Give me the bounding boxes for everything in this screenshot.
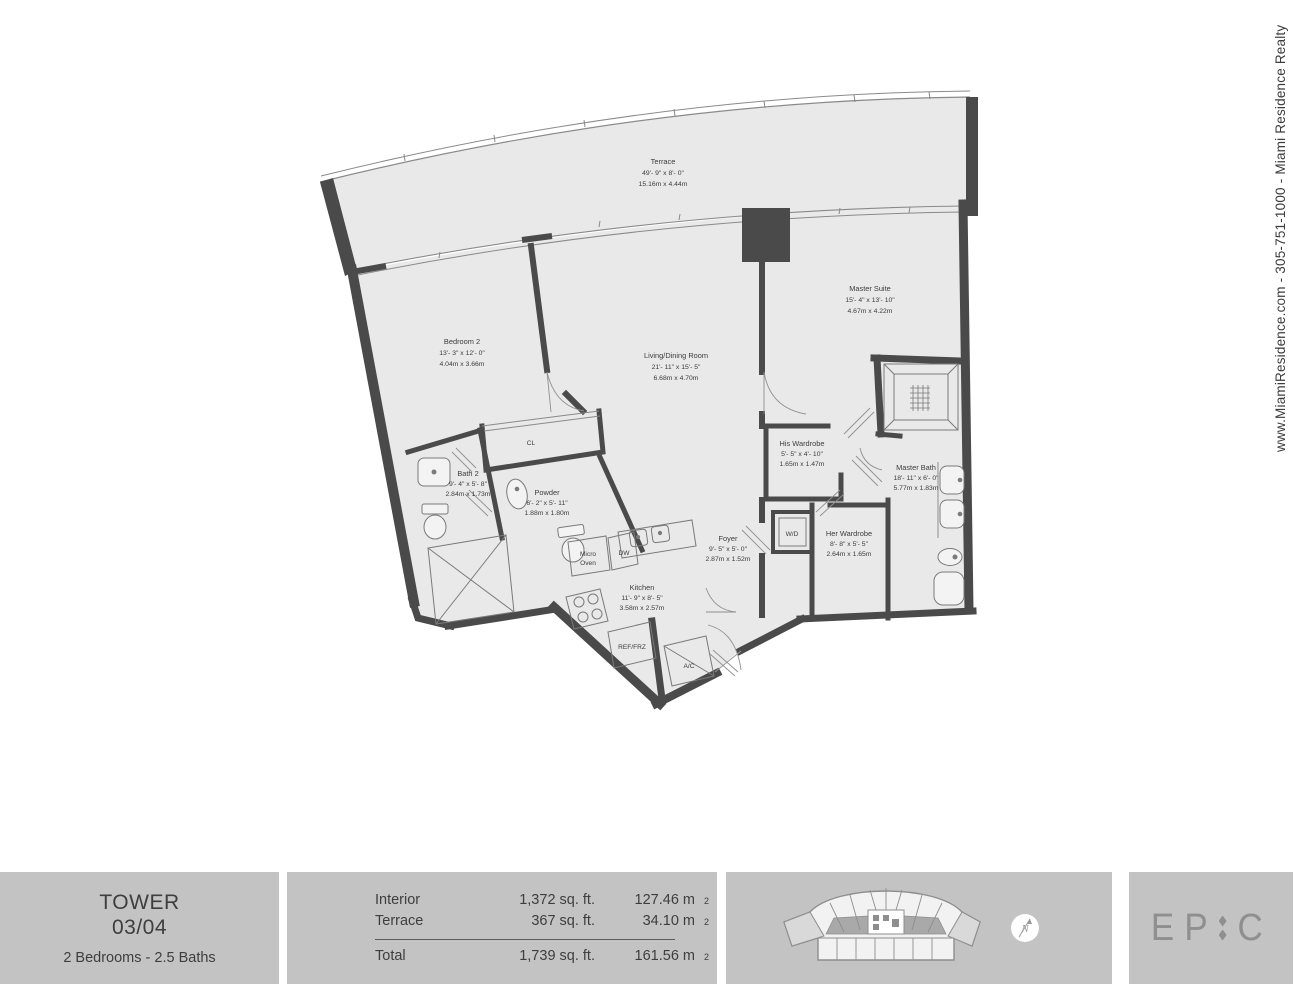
room-dim-m: 1.65m x 1.47m	[780, 461, 825, 468]
epic-logo-right: C	[1237, 907, 1272, 950]
room-dim-ft: 9'- 4" x 5'- 8"	[449, 481, 488, 488]
structural-column	[742, 208, 790, 262]
room-dim-m: 6.68m x 4.70m	[654, 375, 699, 382]
area-metric: 34.10 m	[595, 911, 695, 932]
terrace-right-wall	[966, 97, 978, 216]
room-label: Master Suite	[849, 284, 891, 293]
room-label: Terrace	[651, 157, 676, 166]
room-dim-ft: 11'- 9" x 8'- 5"	[621, 595, 663, 602]
room-dim-ft: 21'- 11" x 15'- 5"	[652, 364, 701, 371]
contact-sidebar-text: www.MiamiResidence.com - 305-751-1000 - …	[1273, 6, 1293, 452]
area-metric-sup: 2	[704, 947, 709, 968]
area-imperial: 1,739 sq. ft.	[465, 946, 595, 967]
master-toilet	[938, 549, 962, 566]
area-label: Terrace	[375, 911, 465, 932]
unit-config: 2 Bedrooms - 2.5 Baths	[63, 950, 215, 966]
room-dim-m: 4.67m x 4.22m	[848, 308, 893, 315]
room-label: Bedroom 2	[444, 337, 480, 346]
room-dim-ft: 13'- 3" x 12'- 0"	[439, 350, 485, 357]
room-dim-m: 15.16m x 4.44m	[639, 181, 688, 188]
master-bidet	[934, 572, 964, 605]
ac-label: A/C	[684, 663, 695, 670]
area-label: Total	[375, 946, 465, 967]
area-row-terrace: Terrace 367 sq. ft. 34.10 m 2	[375, 911, 717, 932]
room-label: Bath 2	[457, 469, 478, 478]
area-metric: 127.46 m	[595, 890, 695, 911]
closet-label: CL	[527, 440, 536, 447]
unit-number: 03/04	[112, 915, 167, 940]
brand-panel: EP C	[1129, 872, 1293, 984]
footer-bar: TOWER 03/04 2 Bedrooms - 2.5 Baths Inter…	[0, 872, 1295, 984]
building-key-plan: N	[726, 872, 1112, 984]
bath2-toilet-tank	[422, 504, 448, 514]
area-imperial: 1,372 sq. ft.	[465, 890, 595, 911]
room-dim-m: 4.04m x 3.66m	[440, 361, 485, 368]
room-label: Powder	[534, 488, 560, 497]
room-dim-m: 2.64m x 1.65m	[827, 551, 872, 558]
compass-north-label: N	[1020, 923, 1029, 935]
bath2-toilet	[424, 515, 446, 539]
floor-plan-sheet: Terrace 49'- 9" x 8'- 0" 15.16m x 4.44m …	[0, 0, 1295, 986]
area-imperial: 367 sq. ft.	[465, 911, 595, 932]
epic-logo-diamonds-icon	[1219, 916, 1227, 941]
microwave-label-2: Oven	[580, 560, 596, 567]
compass: N	[1011, 914, 1039, 942]
area-metric-sup: 2	[704, 891, 709, 912]
keyplan-panel: N	[726, 872, 1112, 984]
area-label: Interior	[375, 890, 465, 911]
dishwasher-label: DW	[619, 550, 631, 557]
area-table-panel: Interior 1,372 sq. ft. 127.46 m 2 Terrac…	[287, 872, 717, 984]
epic-logo: EP C	[1148, 907, 1274, 950]
unit-title-panel: TOWER 03/04 2 Bedrooms - 2.5 Baths	[0, 872, 279, 984]
room-dim-m: 2.84m x 1.73m	[446, 491, 491, 498]
area-metric-sup: 2	[704, 912, 709, 933]
refrigerator-label: REF/FRZ	[618, 644, 646, 651]
room-dim-m: 1.88m x 1.80m	[525, 510, 570, 517]
room-dim-ft: 8'- 8" x 5'- 5"	[830, 541, 869, 548]
room-label: Master Bath	[896, 463, 936, 472]
room-label: Kitchen	[630, 583, 655, 592]
room-dim-m: 5.77m x 1.83m	[894, 485, 939, 492]
area-row-total: Total 1,739 sq. ft. 161.56 m 2	[375, 946, 717, 967]
floor-plan-drawing: Terrace 49'- 9" x 8'- 0" 15.16m x 4.44m …	[300, 80, 995, 740]
room-dim-m: 3.58m x 2.57m	[620, 605, 665, 612]
area-row-interior: Interior 1,372 sq. ft. 127.46 m 2	[375, 890, 717, 911]
room-dim-m: 2.87m x 1.52m	[706, 556, 751, 563]
room-label: Her Wardrobe	[826, 529, 872, 538]
room-dim-ft: 18'- 11" x 6'- 0"	[893, 475, 939, 482]
epic-logo-left: EP	[1151, 907, 1218, 950]
room-label: His Wardrobe	[780, 439, 825, 448]
room-dim-ft: 49'- 9" x 8'- 0"	[642, 170, 684, 177]
room-dim-ft: 15'- 4" x 13'- 10"	[845, 297, 895, 304]
room-label: Living/Dining Room	[644, 351, 708, 360]
microwave-label-1: Micro	[580, 551, 596, 558]
room-label: Foyer	[719, 534, 738, 543]
area-table-divider	[375, 939, 675, 940]
room-dim-ft: 9'- 5" x 5'- 0"	[709, 546, 748, 553]
tower-label: TOWER	[99, 890, 179, 915]
washer-dryer-label: W/D	[786, 531, 799, 538]
area-metric: 161.56 m	[595, 946, 695, 967]
room-dim-ft: 6'- 2" x 5'- 11"	[526, 500, 568, 507]
room-dim-ft: 5'- 5" x 4'- 10"	[781, 451, 823, 458]
